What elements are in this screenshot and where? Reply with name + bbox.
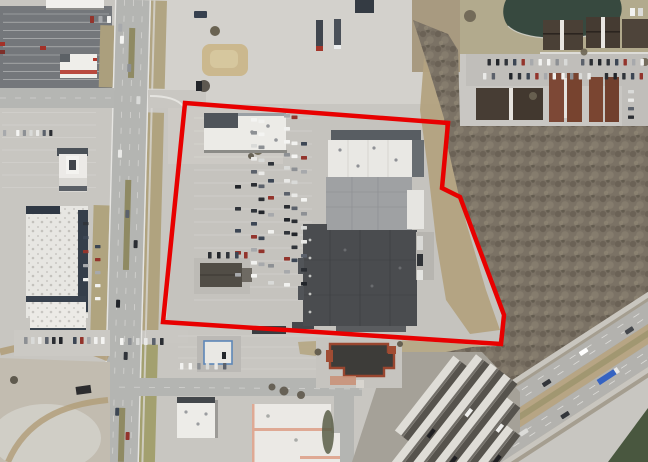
car: [561, 73, 564, 80]
car: [628, 90, 634, 93]
car: [530, 59, 533, 66]
car: [284, 166, 290, 170]
car: [120, 338, 124, 345]
white-roof-section: [328, 140, 412, 177]
car: [251, 170, 257, 174]
car: [251, 248, 257, 252]
brick-wing: [388, 346, 396, 354]
car: [83, 250, 89, 253]
outparcel-canopy: [242, 268, 252, 282]
skylight: [309, 257, 312, 260]
hvac-unit: [196, 422, 199, 425]
building-shadow: [204, 150, 287, 153]
car: [235, 207, 241, 211]
car: [292, 207, 298, 211]
car: [638, 8, 643, 16]
pad-building-dark-roof: [204, 113, 238, 128]
car: [284, 231, 290, 235]
roof-vent: [371, 285, 374, 288]
car: [301, 170, 307, 174]
mid-roof-section: [326, 177, 412, 230]
tree: [280, 387, 289, 396]
red-car: [0, 42, 5, 46]
patio: [330, 376, 356, 385]
car: [631, 73, 634, 80]
car: [73, 337, 77, 344]
car: [128, 338, 132, 345]
car: [292, 181, 298, 185]
car: [95, 297, 101, 300]
car: [292, 220, 298, 224]
car: [301, 268, 307, 272]
car: [615, 59, 618, 66]
car: [115, 408, 119, 416]
car: [134, 240, 138, 248]
car: [101, 337, 105, 344]
car: [83, 264, 89, 267]
car: [292, 168, 298, 172]
bank-tower-core: [69, 160, 76, 170]
west-bumpout: [298, 286, 304, 300]
car: [284, 140, 290, 144]
white-annex-roof: [407, 190, 424, 229]
car: [292, 194, 298, 198]
car: [87, 337, 91, 344]
car: [31, 337, 35, 344]
entry-walk: [356, 380, 364, 388]
car: [268, 213, 274, 217]
semi-trailer: [334, 19, 341, 45]
car: [259, 263, 265, 267]
car: [223, 363, 226, 370]
car: [284, 218, 290, 222]
car: [24, 337, 28, 344]
dock-truck: [417, 270, 423, 280]
car: [251, 118, 257, 122]
car: [59, 337, 63, 344]
verge-east: [139, 344, 158, 462]
car: [99, 16, 103, 23]
hvac-unit: [372, 146, 375, 149]
hvac-unit: [274, 138, 278, 142]
car: [94, 337, 98, 344]
car: [628, 99, 634, 102]
car: [125, 432, 129, 440]
car: [235, 273, 241, 277]
car: [251, 131, 257, 135]
car: [483, 73, 486, 80]
car: [259, 250, 265, 254]
car: [226, 252, 230, 259]
roof-speckle: [30, 302, 86, 332]
car: [301, 212, 307, 216]
car: [16, 130, 19, 136]
northwest-pad-building: [204, 113, 287, 153]
car: [52, 337, 56, 344]
tree: [10, 376, 18, 384]
car: [509, 73, 512, 80]
restaurant: [315, 338, 404, 388]
car: [259, 146, 265, 150]
car: [598, 59, 601, 66]
salmon-trim: [300, 456, 340, 459]
car: [235, 185, 241, 189]
car: [95, 245, 101, 248]
brick-townhome-roof: [567, 73, 582, 122]
car: [301, 254, 307, 258]
car: [3, 130, 6, 136]
car: [292, 259, 298, 263]
car: [259, 159, 265, 163]
strip-building-roof: [46, 0, 104, 8]
car: [579, 73, 582, 80]
car: [259, 237, 265, 241]
car: [235, 229, 241, 233]
car: [564, 59, 567, 66]
car: [36, 130, 39, 136]
car: [45, 337, 49, 344]
car: [251, 274, 257, 278]
building-shadow: [215, 400, 218, 438]
semi-trailer: [316, 20, 323, 46]
roof-gap: [560, 20, 564, 50]
car: [641, 59, 644, 66]
roof-gap: [509, 88, 513, 120]
car: [214, 363, 217, 370]
car: [120, 36, 124, 44]
car: [189, 363, 192, 370]
car: [624, 59, 627, 66]
car: [244, 252, 248, 259]
fastfood-red-trim: [60, 70, 97, 74]
aerial-photo: [0, 0, 648, 462]
car: [268, 162, 274, 166]
car: [284, 127, 290, 131]
car: [152, 338, 156, 345]
roof-dark-strip: [331, 130, 421, 141]
car: [284, 283, 290, 287]
car: [513, 59, 516, 66]
car: [83, 278, 89, 281]
skylight: [309, 275, 312, 278]
car: [547, 59, 550, 66]
car: [622, 73, 625, 80]
townhome-parking-east: [622, 84, 648, 126]
car: [136, 338, 140, 345]
skylight: [309, 293, 312, 296]
car: [284, 205, 290, 209]
southwest-block: [0, 330, 110, 462]
car: [83, 222, 89, 225]
car: [301, 142, 307, 146]
car: [259, 120, 265, 124]
tree: [210, 26, 220, 36]
car: [95, 271, 101, 274]
hvac-unit: [204, 412, 207, 415]
tree: [397, 341, 403, 347]
car: [268, 264, 274, 268]
car: [208, 252, 212, 259]
tree: [269, 384, 276, 391]
car: [539, 59, 542, 66]
car: [196, 81, 202, 91]
car: [217, 252, 221, 259]
car: [284, 153, 290, 157]
car: [107, 16, 111, 23]
tree: [529, 92, 537, 100]
car: [29, 130, 32, 136]
car: [259, 185, 265, 189]
car: [222, 352, 226, 359]
car: [628, 116, 634, 119]
car: [251, 183, 257, 187]
car: [38, 337, 42, 344]
tree: [464, 10, 476, 22]
car: [292, 116, 298, 120]
car: [268, 196, 274, 200]
red-car: [40, 46, 46, 50]
townhome-roof: [476, 88, 510, 120]
car: [144, 338, 148, 345]
hvac-unit: [266, 414, 270, 418]
car: [235, 252, 239, 259]
car: [49, 130, 52, 136]
car: [614, 73, 617, 80]
car: [630, 8, 635, 16]
car: [301, 156, 307, 160]
car: [259, 198, 265, 202]
car: [259, 211, 265, 215]
verge-west: [90, 205, 109, 335]
red-car: [0, 50, 5, 54]
car: [292, 246, 298, 250]
roof-gap: [601, 17, 605, 48]
roof-edge: [238, 113, 286, 116]
bank-canopy-shadow: [59, 186, 87, 191]
car: [251, 209, 257, 213]
tree: [297, 391, 305, 399]
car: [284, 114, 290, 118]
car: [95, 258, 101, 261]
trailer: [355, 0, 374, 13]
roof-vent: [399, 267, 402, 270]
blue-trim-building: [204, 341, 232, 364]
verge-east: [149, 0, 167, 88]
brick-townhome-roof: [589, 77, 603, 122]
car: [160, 338, 164, 345]
car: [136, 96, 140, 104]
hvac-unit: [394, 158, 397, 161]
truck-cab-red: [316, 46, 323, 51]
curb: [540, 52, 648, 54]
car: [284, 179, 290, 183]
car: [570, 73, 573, 80]
car: [125, 210, 129, 218]
roof-dark-band: [26, 206, 60, 214]
car: [259, 133, 265, 137]
car: [251, 157, 257, 161]
car: [95, 284, 101, 287]
car: [259, 172, 265, 176]
hedge: [322, 410, 334, 454]
aerial-scene: [0, 0, 648, 462]
car: [292, 142, 298, 146]
car: [301, 198, 307, 202]
car: [301, 226, 307, 230]
car: [251, 144, 257, 148]
building-shadow: [46, 8, 104, 10]
car: [124, 352, 128, 360]
skylight: [309, 239, 312, 242]
car: [581, 59, 584, 66]
car: [284, 192, 290, 196]
car: [251, 222, 257, 226]
vacant-lot-north: [145, 0, 457, 104]
car: [251, 261, 257, 265]
car: [518, 73, 521, 80]
car: [83, 236, 89, 239]
salmon-trim: [252, 428, 332, 431]
car: [43, 130, 46, 136]
dock-truck: [417, 236, 423, 250]
car: [180, 363, 183, 370]
car: [118, 24, 122, 32]
roof-dark-wing: [412, 140, 424, 177]
salmon-trim: [252, 404, 255, 462]
hvac-unit: [266, 124, 270, 128]
office-building-roof: [177, 397, 215, 438]
car: [268, 230, 274, 234]
townhome-roof: [513, 88, 543, 120]
car: [607, 59, 610, 66]
car: [587, 73, 590, 80]
car: [553, 73, 556, 80]
car: [556, 59, 559, 66]
brick-townhome-roof: [605, 77, 619, 122]
car: [90, 16, 94, 23]
car: [522, 59, 525, 66]
car: [301, 240, 307, 244]
tree: [581, 49, 588, 56]
car: [206, 363, 209, 370]
fastfood-sign: [93, 58, 97, 61]
car: [80, 337, 84, 344]
car: [492, 73, 495, 80]
car: [284, 270, 290, 274]
car: [251, 235, 257, 239]
car: [632, 59, 635, 66]
hvac-unit: [294, 438, 298, 442]
car: [488, 59, 491, 66]
roof-dark-seam: [26, 296, 86, 302]
car: [628, 107, 634, 110]
fastfood-dark-roof: [60, 54, 70, 62]
car: [301, 282, 307, 286]
truck-cab-white: [334, 45, 341, 49]
dock-truck: [417, 254, 423, 266]
hvac-unit: [338, 148, 341, 151]
car: [590, 59, 593, 66]
northwest-block: [0, 0, 112, 90]
car: [284, 257, 290, 261]
car: [127, 64, 131, 72]
townhome-roof: [622, 19, 648, 48]
roof-gap: [564, 78, 567, 118]
south-entry-strip: [336, 326, 406, 332]
car: [118, 150, 122, 158]
outparcel: [194, 258, 252, 294]
car: [527, 73, 530, 80]
verge-island: [99, 25, 115, 87]
car: [292, 155, 298, 159]
car: [505, 59, 508, 66]
car: [268, 281, 274, 285]
dirt-patch-light: [210, 50, 238, 68]
car: [197, 363, 200, 370]
roof-dark-band: [177, 397, 215, 403]
car: [640, 73, 643, 80]
tree: [315, 349, 322, 356]
car: [268, 179, 274, 183]
car: [496, 59, 499, 66]
car: [605, 73, 608, 80]
car: [23, 130, 26, 136]
roof-vent: [344, 249, 347, 252]
car: [535, 73, 538, 80]
car: [292, 233, 298, 237]
hvac-unit: [356, 164, 359, 167]
hvac-unit: [184, 410, 187, 413]
car: [116, 300, 120, 308]
skylight: [309, 311, 312, 314]
car: [194, 11, 207, 18]
car: [544, 73, 547, 80]
brick-townhome-roof: [549, 73, 564, 122]
brick-wing: [326, 350, 333, 362]
